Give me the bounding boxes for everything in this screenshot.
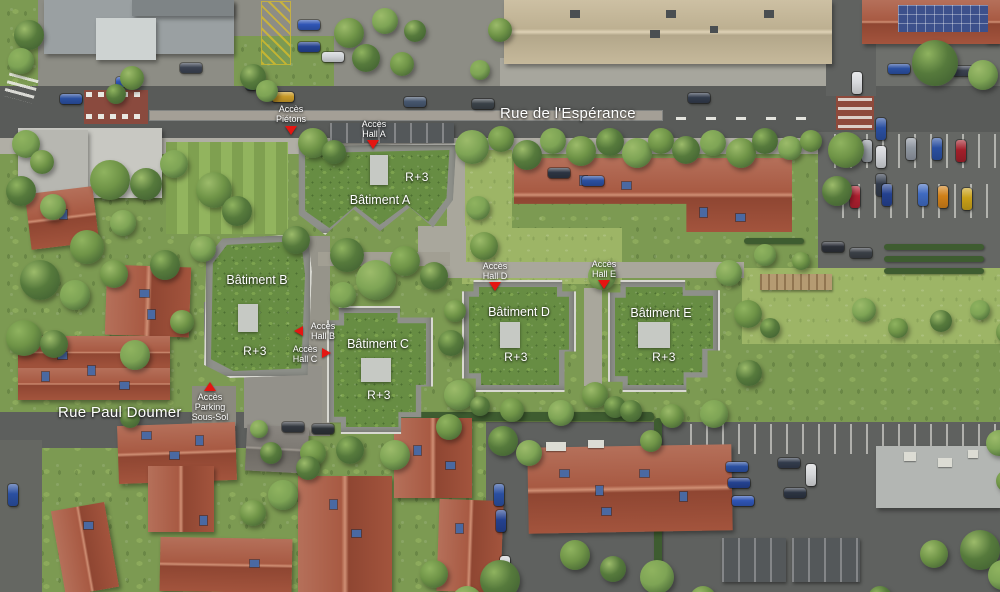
access-hall-c-line2: Hall C	[288, 354, 322, 364]
skylight	[88, 366, 95, 375]
tree	[352, 44, 380, 72]
tree	[222, 196, 252, 226]
skylight	[446, 462, 455, 469]
hedge	[884, 244, 984, 250]
car	[312, 424, 334, 434]
car	[918, 184, 928, 206]
skylight	[142, 432, 151, 439]
skylight	[700, 208, 707, 217]
tree	[30, 150, 54, 174]
roof-hatch	[570, 10, 580, 18]
tree	[390, 52, 414, 76]
tree	[828, 132, 864, 168]
tree	[420, 560, 448, 588]
skylight	[414, 446, 421, 455]
car	[852, 72, 862, 94]
building-d	[462, 280, 576, 392]
tree	[920, 540, 948, 568]
car	[850, 248, 872, 258]
tree	[6, 176, 36, 206]
car	[906, 138, 916, 160]
car	[876, 146, 886, 168]
tree	[970, 300, 990, 320]
car	[806, 464, 816, 486]
access-hall-a-label: Accès Hall A	[352, 119, 396, 139]
tree	[436, 414, 462, 440]
access-pietons-line2: Piétons	[266, 114, 316, 124]
skylight	[680, 492, 687, 501]
car	[732, 496, 754, 506]
road-left	[0, 440, 42, 592]
tree	[500, 398, 524, 422]
tree	[40, 194, 66, 220]
access-parking-label: Accès Parking Sous-Sol	[180, 392, 240, 422]
parking-line	[978, 134, 980, 168]
tree	[968, 60, 998, 90]
tree	[420, 262, 448, 290]
tree	[106, 84, 126, 104]
car	[496, 510, 506, 532]
tree	[480, 560, 520, 592]
access-pietons-arrow-icon	[285, 126, 297, 135]
speed-table-dashes-bottom	[86, 114, 146, 119]
access-hall-d-line1: Accès	[477, 261, 513, 271]
building-e-floors: R+3	[644, 350, 684, 364]
tree	[566, 136, 596, 166]
parking-line	[834, 424, 836, 454]
tree	[822, 176, 852, 206]
tree	[716, 260, 742, 286]
tree	[516, 440, 542, 466]
tree	[660, 404, 684, 428]
access-hall-d-arrow-icon	[489, 282, 501, 291]
tree	[488, 126, 514, 152]
building-c-roof-structure	[361, 358, 391, 382]
access-hall-c-arrow-icon	[322, 348, 331, 358]
roof-box	[904, 452, 916, 461]
tree	[20, 260, 60, 300]
car	[728, 478, 750, 488]
tree	[70, 230, 104, 264]
tree	[488, 426, 518, 456]
car	[60, 94, 82, 104]
car	[938, 186, 948, 208]
tree	[130, 168, 162, 200]
skylight	[640, 470, 649, 477]
access-hall-a-line1: Accès	[352, 119, 396, 129]
yellow-hatch-zone	[262, 2, 290, 64]
tree	[268, 480, 298, 510]
building-a-label: Bâtiment A	[330, 193, 430, 207]
car	[298, 42, 320, 52]
tree	[470, 232, 498, 260]
tree	[700, 400, 728, 428]
skylight	[736, 214, 745, 221]
tree	[438, 330, 464, 356]
skylight	[120, 382, 129, 389]
parking-line	[738, 424, 740, 454]
tree	[648, 128, 674, 154]
access-hall-e-label: Accès Hall E	[586, 259, 622, 279]
skylight	[200, 516, 207, 525]
street-label-esperance: Rue de l'Espérance	[500, 105, 636, 122]
tree	[754, 244, 776, 266]
access-pietons-label: Accès Piétons	[266, 104, 316, 124]
context-building-white-annex	[96, 18, 156, 60]
tree	[792, 252, 810, 270]
building-b-roof-structure	[238, 304, 258, 332]
hedge	[884, 268, 984, 274]
skylight	[148, 310, 155, 319]
access-parking-arrow-icon	[204, 382, 216, 391]
carport-south-1	[722, 538, 786, 582]
tree	[470, 396, 490, 416]
tree	[380, 440, 410, 470]
access-hall-b-label: Accès Hall B	[305, 321, 341, 341]
tree	[455, 130, 489, 164]
site-plan-scene: Rue de l'Espérance Rue Paul Doumer Bâtim…	[0, 0, 1000, 592]
parking-line	[866, 424, 868, 454]
skylight	[602, 508, 611, 515]
tree	[330, 282, 356, 308]
building-a-floors: R+3	[397, 170, 437, 184]
tree	[322, 140, 346, 164]
car	[962, 188, 972, 210]
tree	[488, 18, 512, 42]
tree	[800, 130, 822, 152]
path-d-e	[584, 288, 602, 386]
tree	[640, 560, 674, 592]
roof-box	[938, 458, 952, 467]
tree	[700, 130, 726, 156]
street-label-paul-doumer: Rue Paul Doumer	[58, 404, 182, 421]
tree	[100, 260, 128, 288]
crosswalk-north-stripes	[838, 98, 872, 128]
tree	[752, 128, 778, 154]
car	[784, 488, 806, 498]
tree	[120, 66, 144, 90]
house-roof	[51, 502, 119, 592]
roof-box	[588, 440, 604, 448]
tree	[640, 430, 662, 452]
skylight	[456, 524, 463, 533]
tree	[404, 20, 426, 42]
solar-panel-array	[898, 5, 988, 32]
parking-line	[754, 424, 756, 454]
tree	[466, 196, 490, 220]
building-c-floors: R+3	[359, 388, 399, 402]
roof-box	[968, 450, 978, 458]
access-pietons-line1: Accès	[266, 104, 316, 114]
tree	[912, 40, 958, 86]
building-b-label: Bâtiment B	[207, 273, 307, 287]
skylight	[596, 486, 603, 495]
context-building-gray-nw-dark	[132, 0, 234, 16]
tree	[512, 140, 542, 170]
tree	[150, 250, 180, 280]
building-e	[608, 280, 720, 392]
tree	[888, 318, 908, 338]
tree	[282, 226, 310, 254]
access-parking-line3: Sous-Sol	[180, 412, 240, 422]
house-roof	[298, 476, 392, 592]
tree	[8, 48, 34, 74]
car	[822, 242, 844, 252]
car	[322, 52, 344, 62]
parking-line	[770, 424, 772, 454]
access-hall-d-label: Accès Hall D	[477, 261, 513, 281]
access-parking-line1: Accès	[180, 392, 240, 402]
access-hall-e-arrow-icon	[598, 280, 610, 289]
parking-line	[986, 184, 988, 218]
car	[778, 458, 800, 468]
tree	[600, 556, 626, 582]
car	[876, 118, 886, 140]
skylight	[352, 530, 361, 537]
tree	[736, 360, 762, 386]
access-hall-c-label: Accès Hall C	[288, 344, 322, 364]
tree	[336, 436, 364, 464]
skylight	[622, 182, 631, 189]
pergola	[760, 274, 832, 290]
tree	[444, 300, 466, 322]
carport-south-2	[792, 538, 860, 582]
tree	[540, 128, 566, 154]
hedge	[744, 238, 804, 244]
roof-box	[546, 442, 566, 451]
building-b-floors: R+3	[235, 344, 275, 358]
skylight	[560, 470, 569, 477]
tree	[60, 280, 90, 310]
lane-dashes	[676, 117, 816, 120]
car	[298, 20, 320, 30]
roof-hatch	[666, 10, 676, 18]
access-parking-line2: Parking	[180, 402, 240, 412]
tree	[6, 320, 42, 356]
tree	[672, 136, 700, 164]
skylight	[140, 290, 149, 297]
tree	[110, 210, 136, 236]
tree	[560, 540, 590, 570]
car	[688, 93, 710, 103]
access-hall-a-line2: Hall A	[352, 129, 396, 139]
skylight	[42, 372, 49, 381]
tree	[734, 300, 762, 328]
building-a-roof-structure	[370, 155, 388, 185]
tree	[190, 236, 216, 262]
car	[582, 176, 604, 186]
tree	[14, 20, 44, 50]
skylight	[330, 500, 337, 509]
access-hall-e-line2: Hall E	[586, 269, 622, 279]
roof-hatch	[764, 10, 774, 18]
access-hall-e-line1: Accès	[586, 259, 622, 269]
tree	[852, 298, 876, 322]
building-e-roof-structure	[638, 322, 670, 348]
house-roof	[527, 444, 732, 534]
car	[956, 140, 966, 162]
tree	[390, 246, 420, 276]
tree	[90, 160, 130, 200]
car	[8, 484, 18, 506]
parking-line	[954, 184, 956, 218]
skylight	[84, 522, 93, 529]
parking-line	[898, 134, 900, 168]
skylight	[196, 436, 203, 445]
skylight	[250, 560, 259, 567]
access-hall-c-line1: Accès	[288, 344, 322, 354]
tree	[40, 330, 68, 358]
car	[882, 184, 892, 206]
parking-line	[906, 184, 908, 218]
car	[282, 422, 304, 432]
tree	[334, 18, 364, 48]
parking-line	[946, 134, 948, 168]
building-c-label: Bâtiment C	[328, 337, 428, 351]
tree	[778, 136, 802, 160]
tree	[120, 340, 150, 370]
tree	[596, 128, 624, 156]
tree	[260, 442, 282, 464]
tree	[620, 400, 642, 422]
tree	[372, 8, 398, 34]
tree	[470, 60, 490, 80]
tree	[170, 310, 194, 334]
tree	[760, 318, 780, 338]
building-c	[327, 306, 433, 434]
access-hall-d-line2: Hall D	[477, 271, 513, 281]
tree	[330, 238, 364, 272]
parking-line	[818, 424, 820, 454]
building-d-floors: R+3	[496, 350, 536, 364]
roof-hatch	[650, 30, 660, 38]
context-building-flat-se	[876, 446, 1000, 508]
car	[494, 484, 504, 506]
parking-line	[850, 424, 852, 454]
car	[932, 138, 942, 160]
tree	[160, 150, 188, 178]
access-hall-a-arrow-icon	[367, 140, 379, 149]
roof-hatch	[710, 26, 718, 33]
skylight	[170, 452, 179, 459]
car	[404, 97, 426, 107]
tree	[250, 420, 268, 438]
building-d-roof-structure	[500, 322, 520, 348]
building-e-label: Bâtiment E	[611, 306, 711, 320]
parking-line	[994, 134, 996, 168]
car	[726, 462, 748, 472]
building-d-label: Bâtiment D	[469, 305, 569, 319]
access-hall-b-line2: Hall B	[305, 331, 341, 341]
access-hall-b-line1: Accès	[305, 321, 341, 331]
car	[888, 64, 910, 74]
access-hall-b-arrow-icon	[294, 326, 303, 336]
hedge	[884, 256, 984, 262]
house-roof	[160, 537, 293, 592]
tree	[548, 400, 574, 426]
parking-line	[802, 424, 804, 454]
tree	[240, 500, 266, 526]
car	[548, 168, 570, 178]
car	[472, 99, 494, 109]
parking-line	[786, 424, 788, 454]
car	[180, 63, 202, 73]
tree	[930, 310, 952, 332]
tree	[256, 80, 278, 102]
tree	[296, 456, 320, 480]
